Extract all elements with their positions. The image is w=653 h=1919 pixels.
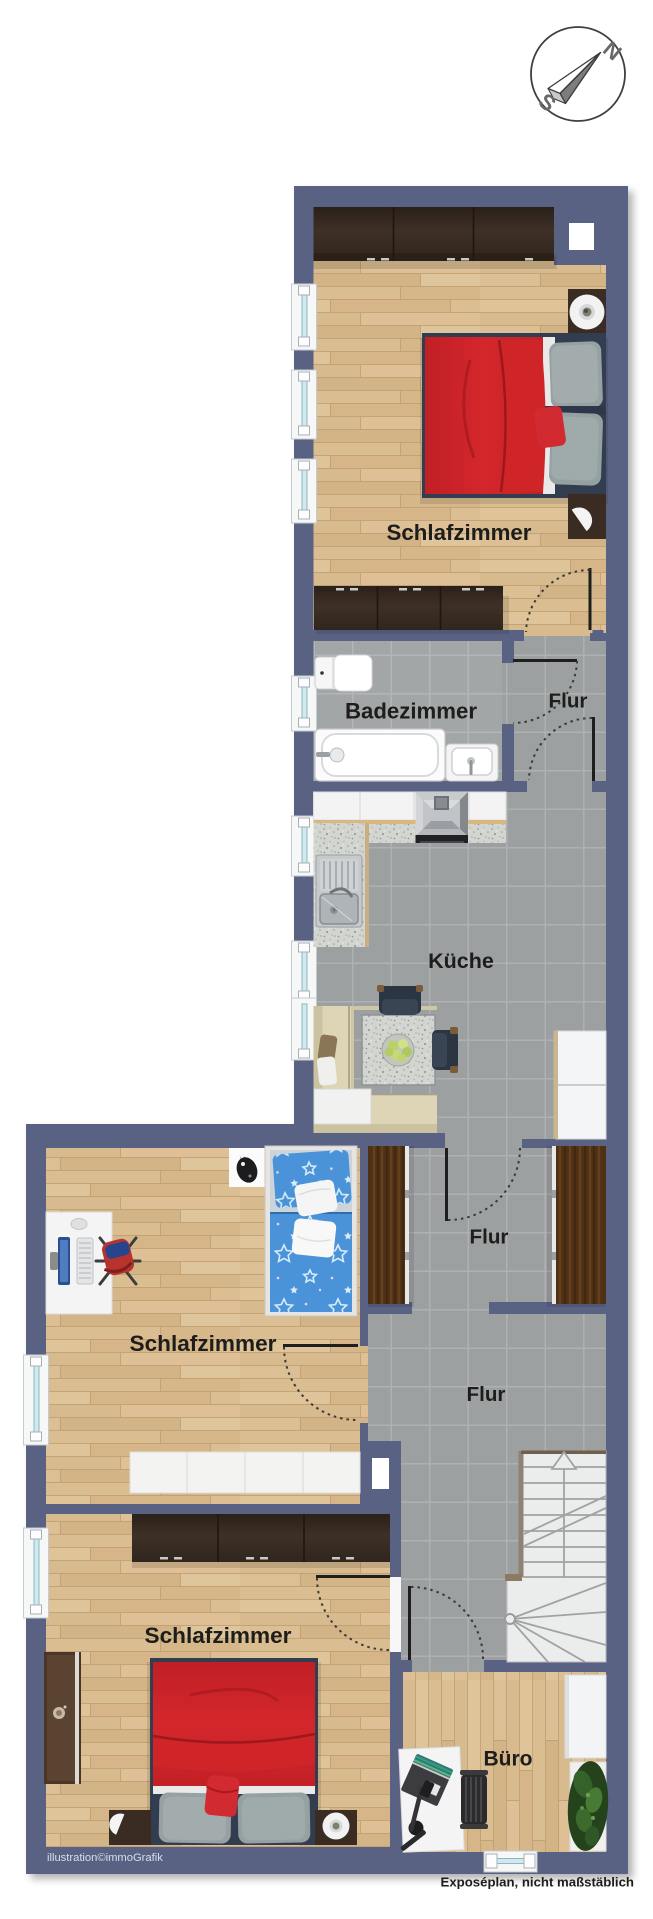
svg-text:Schlafzimmer: Schlafzimmer (130, 1331, 277, 1356)
svg-text:Büro: Büro (484, 1748, 533, 1771)
svg-text:Flur: Flur (549, 690, 588, 713)
svg-text:illustration©immoGrafik: illustration©immoGrafik (47, 1852, 163, 1864)
svg-text:Badezimmer: Badezimmer (345, 699, 477, 724)
svg-text:Flur: Flur (470, 1226, 509, 1249)
svg-text:Küche: Küche (428, 949, 494, 973)
svg-text:Schlafzimmer: Schlafzimmer (145, 1623, 292, 1648)
svg-text:Exposéplan, nicht maßstäblich: Exposéplan, nicht maßstäblich (441, 1875, 634, 1890)
svg-text:Flur: Flur (467, 1383, 506, 1406)
svg-text:Schlafzimmer: Schlafzimmer (387, 520, 532, 545)
